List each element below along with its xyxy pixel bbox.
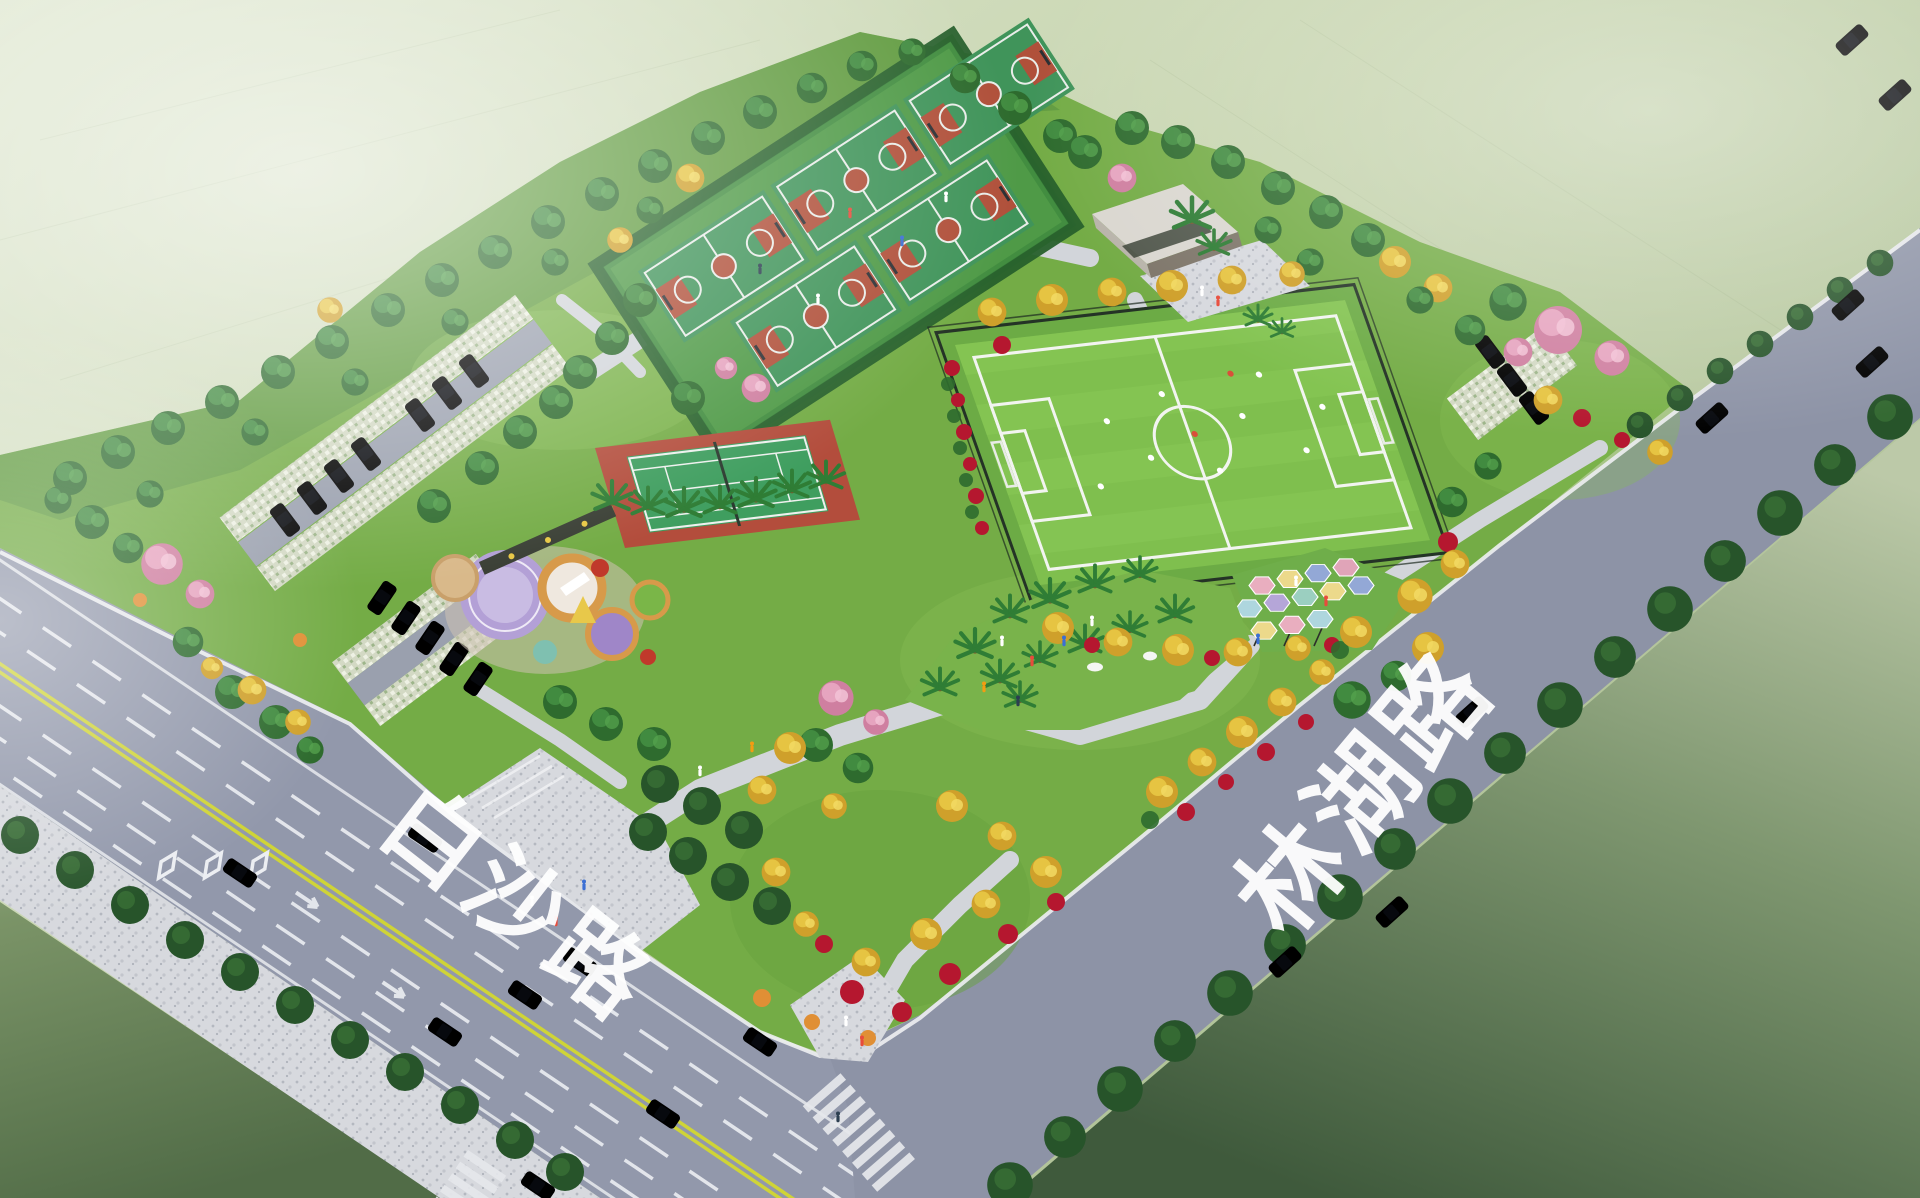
rendering-canvas: 白沙路 林湖路 (0, 0, 1920, 1198)
play-dome (591, 559, 609, 577)
swan-sculpture (1087, 663, 1103, 672)
park-rendering: 白沙路 林湖路 (0, 0, 1920, 1198)
play-dome (640, 649, 656, 665)
swan-sculpture (1143, 652, 1157, 661)
